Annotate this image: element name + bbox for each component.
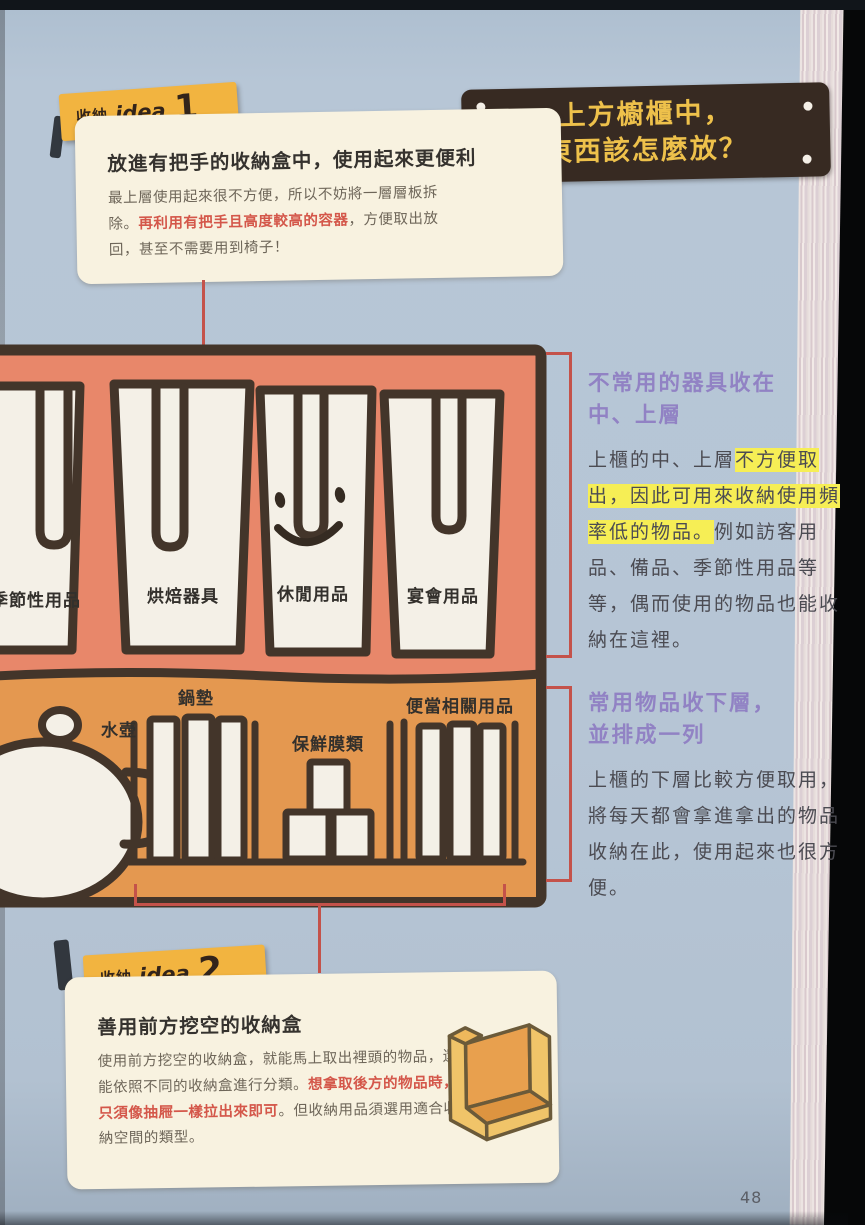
note1-body: 上櫃的中、上層不方便取出，因此可用來收納使用頻率低的物品。例如訪客用品、備品、季… bbox=[588, 442, 852, 659]
scan-black-top-edge bbox=[0, 0, 865, 10]
storage-box-with-face bbox=[260, 390, 372, 652]
scan-bottom-shadow bbox=[0, 1211, 848, 1225]
bin-right-wall bbox=[529, 1025, 550, 1105]
upper-shelf-bracket bbox=[546, 352, 572, 658]
pot-mat-panels bbox=[150, 717, 244, 860]
page-number: 48 bbox=[740, 1188, 762, 1207]
tip1-title: 放進有把手的收納盒中，使用起來更便利 bbox=[107, 140, 535, 176]
open-front-box-illustration bbox=[435, 1005, 563, 1159]
screw-dot-icon bbox=[802, 155, 811, 164]
tip2-body: 使用前方挖空的收納盒，就能馬上取出裡頭的物品，還能依照不同的收納盒進行分類。想拿… bbox=[98, 1045, 467, 1153]
sign-line1: 上方櫥櫃中， bbox=[558, 95, 733, 135]
box-label: 休閒用品 bbox=[276, 584, 349, 605]
item-label: 鍋墊 bbox=[178, 688, 214, 709]
box-label: 宴會用品 bbox=[407, 586, 479, 607]
tip1-body-emphasis: 再利用有把手且高度較高的容器 bbox=[138, 212, 348, 232]
bento-panels bbox=[419, 724, 503, 859]
note2-body: 上櫃的下層比較方便取用，將每天都會拿進拿出的物品收納在此，使用起來也很方便。 bbox=[588, 762, 852, 906]
box-label: 烘焙器具 bbox=[147, 586, 219, 607]
note1-heading: 不常用的器具收在 中、上層 bbox=[588, 368, 852, 433]
connector-bracket bbox=[134, 884, 506, 906]
item-label: 便當相關用品 bbox=[406, 696, 514, 717]
note1-heading-line1: 不常用的器具收在 bbox=[588, 368, 852, 400]
box-label: 季節性用品 bbox=[0, 590, 81, 611]
item-label: 水壺 bbox=[101, 720, 137, 741]
note2-heading: 常用物品收下層， 並排成一列 bbox=[588, 688, 852, 753]
scanned-book-page: 收納 idea 1 上方櫥櫃中， 東西該怎麼放？ 放進有把手的收納盒中，使用起來… bbox=[0, 0, 865, 1225]
connector-drop-line bbox=[318, 905, 321, 973]
screw-dot-icon bbox=[803, 102, 812, 111]
note2-heading-line1: 常用物品收下層， bbox=[588, 688, 852, 720]
sign-line2: 東西該怎麼放？ bbox=[545, 131, 749, 172]
note2-heading-line2: 並排成一列 bbox=[588, 720, 852, 752]
note-infrequent-items: 不常用的器具收在 中、上層 上櫃的中、上層不方便取出，因此可用來收納使用頻率低的… bbox=[588, 368, 852, 658]
tip2-box: 善用前方挖空的收納盒 使用前方挖空的收納盒，就能馬上取出裡頭的物品，還能依照不同… bbox=[65, 971, 560, 1190]
item-label: 保鮮膜類 bbox=[291, 734, 364, 755]
tip1-body: 最上層使用起來很不方便，所以不妨將一層層板拆除。再利用有把手且高度較高的容器，方… bbox=[108, 180, 464, 264]
tip1-box: 放進有把手的收納盒中，使用起來更便利 最上層使用起來很不方便，所以不妨將一層層板… bbox=[75, 108, 564, 284]
note-frequent-items: 常用物品收下層， 並排成一列 上櫃的下層比較方便取用，將每天都會拿進拿出的物品收… bbox=[588, 688, 852, 906]
note1-heading-line2: 中、上層 bbox=[588, 400, 852, 432]
lower-shelf-bracket bbox=[546, 686, 572, 882]
note1-body-text: 上櫃的中、上層 bbox=[588, 449, 735, 471]
cabinet-illustration: 季節性用品 烘焙器具 休閒用品 宴會用品 bbox=[0, 344, 548, 908]
